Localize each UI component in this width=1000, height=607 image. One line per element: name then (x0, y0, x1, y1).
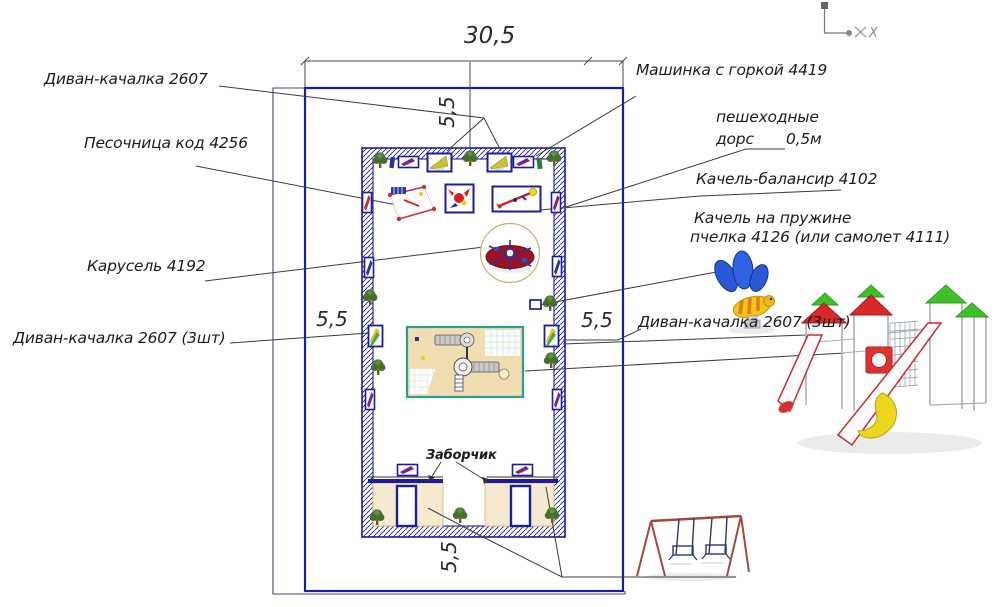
dim-bottom: 5,5 (437, 537, 461, 577)
label-divan-top: Диван-качалка 2607 (44, 70, 208, 88)
spring-rocker-marker (530, 300, 541, 309)
fence-lines (368, 477, 558, 481)
label-sandbox: Песочница код 4256 (84, 134, 248, 152)
swing-areas (373, 483, 554, 526)
spring-rocker-icon (446, 185, 474, 213)
carousel-icon (481, 224, 540, 283)
label-divan-left: Диван-качалка 2607 (3шт) (13, 329, 226, 347)
label-paths-word1: пешеходные (716, 108, 819, 126)
label-car-slide: Машинка с горкой 4419 (636, 61, 827, 79)
dim-top-offset: 5,5 (435, 92, 459, 132)
dim-left-side: 5,5 (316, 307, 348, 331)
axis-x-label: X (868, 26, 879, 41)
sandbox-icon (388, 185, 436, 221)
label-carousel: Карусель 4192 (87, 257, 205, 275)
label-divan-right: Диван-качалка 2607 (3шт) (638, 313, 851, 331)
label-spring-row1: Качель на пружине (694, 209, 851, 227)
dim-right-side: 5,5 (581, 308, 613, 332)
dimension-lines (301, 57, 627, 148)
swing-set-render (637, 516, 749, 581)
seesaw-icon (493, 187, 541, 212)
label-fence: Заборчик (426, 448, 497, 463)
play-complex-render (777, 285, 988, 454)
label-paths-word2: дорс (716, 130, 754, 148)
label-spring-row2: пчелка 4126 (или самолет 4111) (690, 228, 950, 246)
label-seesaw: Качель-балансир 4102 (696, 170, 877, 188)
playground-plan-canvas: X (0, 0, 1000, 607)
play-complex-plan-icon (407, 327, 523, 397)
label-paths-value: 0,5м (786, 130, 822, 148)
dim-top-width: 30,5 (464, 23, 515, 49)
plan-drawing: X (0, 0, 1000, 607)
xy-axis-icon: X (821, 2, 879, 41)
